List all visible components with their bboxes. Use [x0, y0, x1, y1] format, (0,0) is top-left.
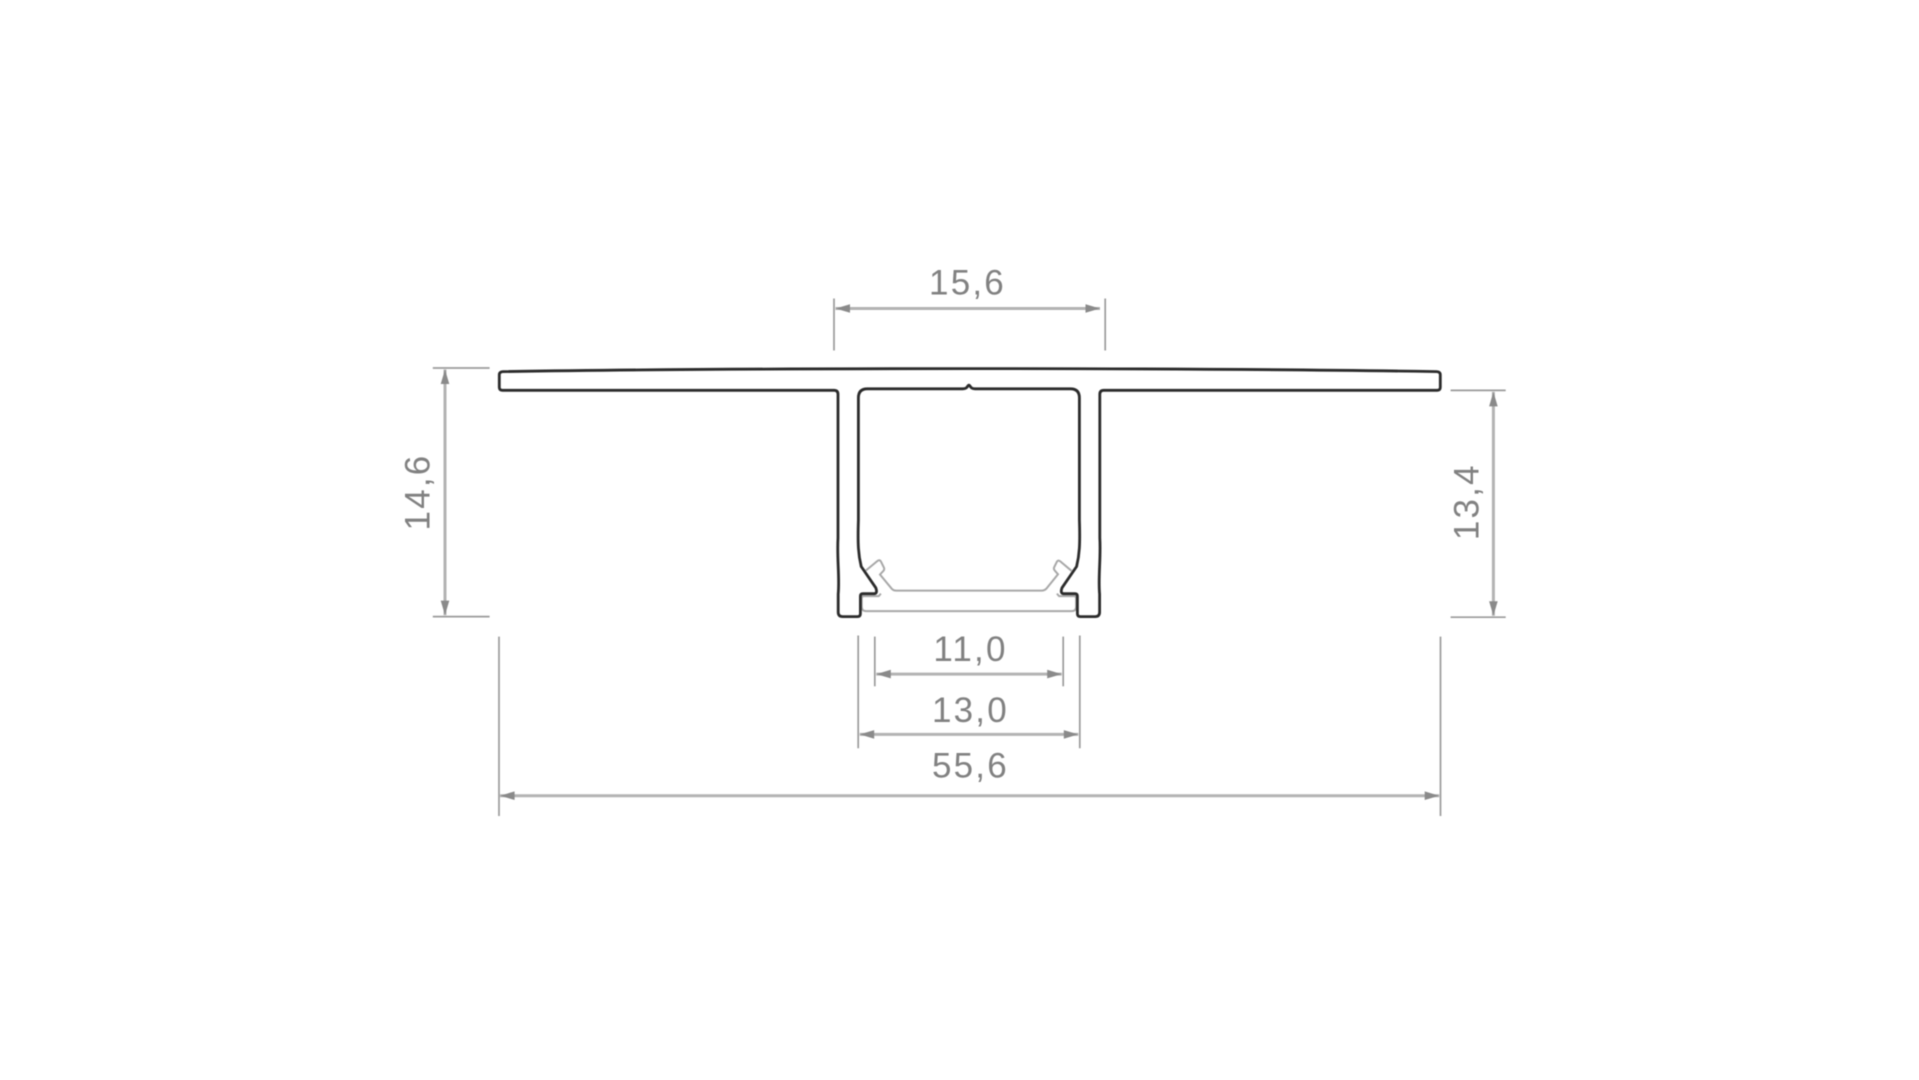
svg-text:13,4: 13,4	[1448, 463, 1487, 540]
svg-text:15,6: 15,6	[929, 264, 1006, 303]
svg-text:55,6: 55,6	[932, 747, 1009, 786]
svg-text:11,0: 11,0	[933, 630, 1007, 669]
svg-text:14,6: 14,6	[399, 454, 438, 531]
svg-text:13,0: 13,0	[932, 691, 1009, 730]
